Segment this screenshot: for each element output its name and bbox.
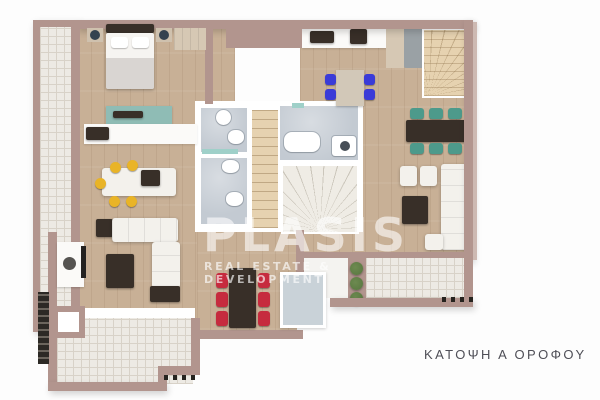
bedside-lamp-icon — [159, 30, 169, 40]
media-strip — [81, 246, 86, 278]
stool-yellow — [110, 162, 121, 173]
exterior-wall-right — [464, 20, 473, 261]
shower-icon — [222, 160, 239, 173]
chair-teal — [410, 143, 424, 154]
cooktop-left — [141, 170, 160, 186]
chair-teal — [429, 143, 443, 154]
terrace-wall-bottom — [48, 382, 166, 391]
sofa-right-foot — [425, 234, 443, 250]
pillow — [132, 37, 149, 48]
wall-edge-highlight — [473, 22, 477, 260]
desk-monitor — [113, 111, 143, 118]
stool-yellow — [126, 196, 137, 207]
pillow — [111, 37, 128, 48]
washbasin-icon — [216, 110, 231, 125]
bed-headboard — [106, 24, 154, 33]
sofa-left-horizontal — [112, 218, 178, 242]
coffee-table-left — [106, 254, 134, 288]
terrace-wall-right — [191, 318, 200, 373]
fireplace-icon — [63, 257, 76, 270]
armchair — [420, 166, 437, 186]
chair-blue — [325, 89, 336, 100]
chair-teal — [448, 143, 462, 154]
dining-table-right — [406, 120, 466, 142]
chair-red — [216, 292, 228, 307]
wardrobe — [174, 28, 206, 50]
kitchen-table — [336, 70, 364, 106]
side-table-dark — [96, 219, 113, 237]
armchair — [400, 166, 417, 186]
toilet-icon — [226, 192, 243, 206]
railing-dots — [442, 297, 473, 302]
floor-plan-render: PLASIS REAL ESTATE & DEVELOPMENT ΚΑΤΟΨΗ … — [0, 0, 600, 400]
kitchen-sink — [310, 31, 334, 43]
stool-yellow — [127, 160, 138, 171]
chair-red — [258, 311, 270, 326]
bedside-lamp-icon — [90, 30, 100, 40]
chair-teal — [410, 108, 424, 119]
window-band — [83, 308, 195, 318]
watermark-tagline: REAL ESTATE & DEVELOPMENT — [204, 260, 414, 286]
cooktop — [350, 29, 367, 44]
exterior-stair-rungs — [38, 292, 49, 364]
chair-blue — [364, 74, 375, 85]
chair-red — [258, 292, 270, 307]
wall-opening — [58, 312, 79, 332]
railing-dots — [164, 375, 196, 380]
sofa-left-vertical — [152, 242, 180, 288]
side-table-dark — [150, 286, 180, 302]
stool-yellow — [95, 178, 106, 189]
chair-blue — [364, 89, 375, 100]
kitchen-cabinet — [386, 28, 404, 68]
wall-top-center — [226, 20, 302, 48]
bath-shelf — [292, 103, 304, 108]
fridge-unit — [404, 26, 424, 68]
chair-blue — [325, 74, 336, 85]
washing-machine-door — [340, 141, 350, 151]
plan-caption: ΚΑΤΟΨΗ Α ΟΡΟΦΟΥ — [424, 347, 600, 362]
bath-shelf — [202, 149, 238, 154]
wall-bedroom-right — [205, 28, 213, 104]
chair-teal — [429, 108, 443, 119]
stool-yellow — [109, 196, 120, 207]
wall-dining-bottom — [195, 330, 303, 339]
toilet-icon — [228, 130, 244, 144]
kitchen-sink-left — [86, 127, 109, 140]
watermark-brand: PLASIS — [203, 212, 413, 258]
chair-red — [216, 311, 228, 326]
bathtub-icon — [284, 132, 320, 152]
chair-teal — [448, 108, 462, 119]
